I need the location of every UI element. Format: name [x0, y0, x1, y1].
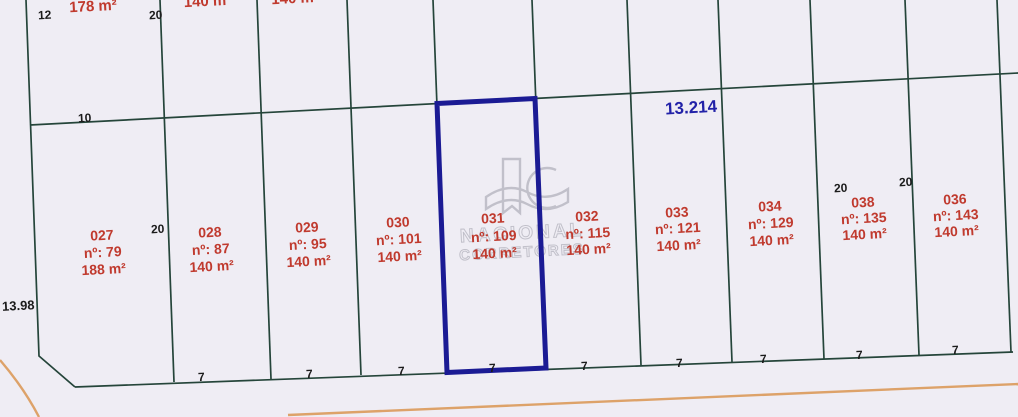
lot-num: nº: 101	[376, 230, 423, 248]
lot-area: 140 m²	[566, 240, 611, 258]
dimension-label: 20	[149, 8, 163, 23]
total-width-label: 13.214	[665, 97, 718, 119]
frontage-label: 7	[489, 361, 497, 375]
lot-num: nº: 109	[471, 227, 518, 245]
top-lot-area: 178 m²	[69, 0, 117, 16]
frontage-label: 7	[306, 367, 314, 381]
lot-num: nº: 79	[83, 243, 122, 261]
lot-area: 140 m²	[472, 244, 517, 262]
dimension-label: 13.98	[2, 297, 35, 314]
lot-id: 029	[295, 218, 319, 235]
lot-num: nº: 87	[191, 240, 230, 258]
frontage-label: 7	[398, 364, 406, 378]
lot-area: 140 m²	[934, 222, 979, 240]
lot-id: 038	[851, 193, 875, 210]
dimension-label: 12	[38, 8, 52, 23]
lot-area: 140 m²	[189, 257, 234, 275]
lot-id: 036	[943, 190, 967, 207]
plat-map: NACIONAL CORRETORES 178 m² 140 m 140 m² …	[0, 0, 1018, 417]
lot-num: nº: 129	[748, 214, 795, 232]
lot-id: 028	[198, 223, 222, 240]
lot-num: nº: 121	[655, 219, 702, 237]
lot-id: 031	[481, 209, 505, 226]
lot-area: 140 m²	[286, 252, 331, 270]
frontage-label: 7	[198, 370, 206, 384]
lot-id: 032	[575, 207, 599, 224]
lot-area: 188 m²	[81, 260, 126, 278]
dimension-label: 10	[78, 111, 92, 126]
frontage-label: 7	[952, 343, 960, 357]
lot-id: 030	[386, 213, 410, 230]
frontage-label: 7	[760, 352, 768, 366]
dimension-label: 20	[899, 175, 913, 190]
dimension-label: 20	[834, 181, 848, 196]
dimension-label: 20	[151, 222, 165, 237]
lot-id: 033	[665, 203, 689, 220]
lot-id: 027	[90, 226, 114, 243]
frontage-label: 7	[676, 356, 684, 370]
lot-area: 140 m²	[377, 247, 422, 265]
lot-num: nº: 95	[288, 235, 327, 253]
frontage-label: 7	[856, 348, 864, 362]
lot-area: 140 m²	[656, 236, 701, 254]
frontage-label: 7	[581, 359, 589, 373]
lot-area: 140 m²	[842, 225, 887, 243]
plat-map-canvas: NACIONAL CORRETORES 178 m² 140 m 140 m² …	[0, 0, 1018, 417]
lot-area: 140 m²	[749, 231, 794, 249]
lot-id: 034	[758, 197, 782, 214]
